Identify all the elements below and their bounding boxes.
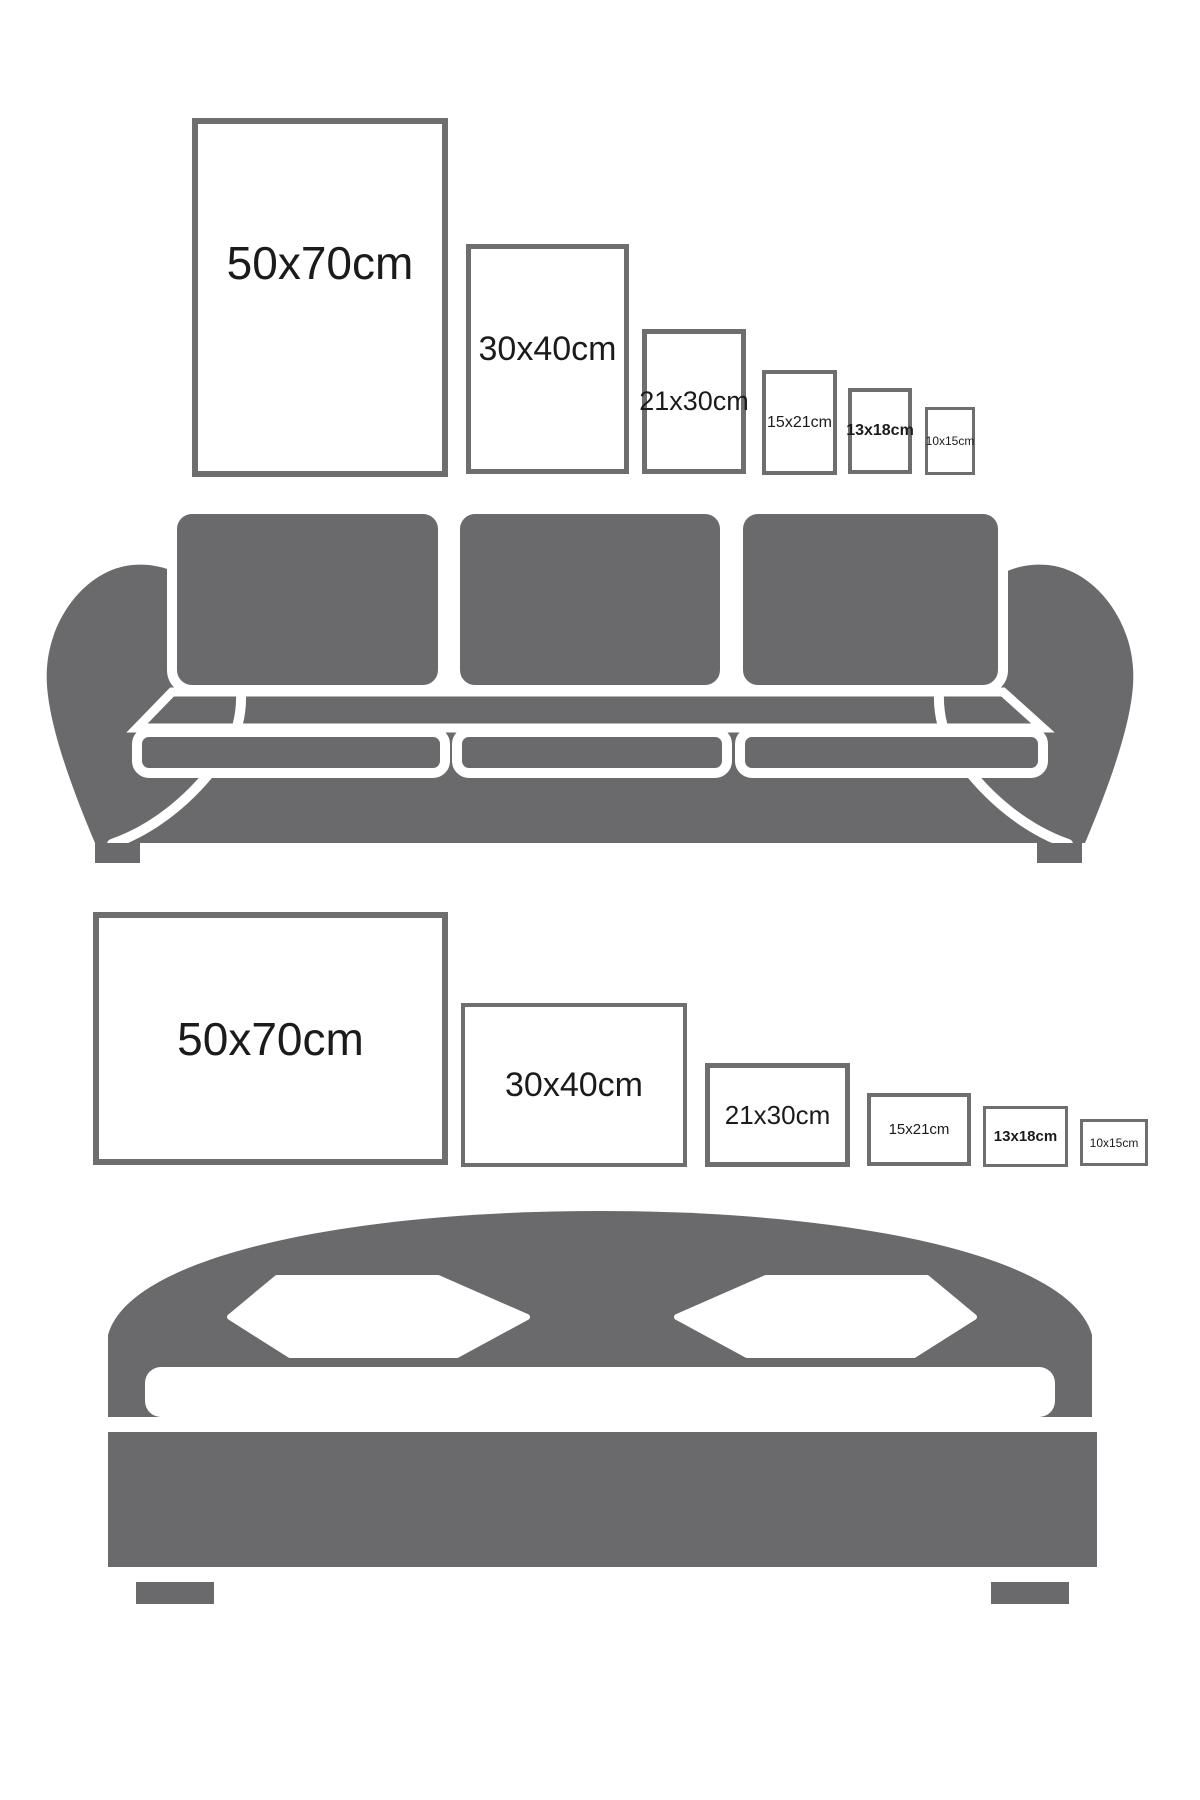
sofa-seat-cushion-middle xyxy=(457,732,727,773)
frame-label: 30x40cm xyxy=(505,1068,643,1102)
frame-13x18-landscape: 13x18cm xyxy=(983,1106,1068,1167)
frame-50x70-portrait: 50x70cm xyxy=(192,118,448,477)
sofa-back-cushion-right xyxy=(738,509,1003,690)
sofa-back-cushion-middle xyxy=(455,509,725,690)
frame-label: 21x30cm xyxy=(725,1102,831,1128)
frame-15x21-portrait: 15x21cm xyxy=(762,370,837,475)
frame-label: 10x15cm xyxy=(1090,1137,1139,1149)
frame-label: 13x18cm xyxy=(846,423,914,439)
frame-label: 50x70cm xyxy=(177,1016,364,1062)
poster-size-guide-infographic: 50x70cm 30x40cm 21x30cm 15x21cm 13x18cm … xyxy=(0,0,1200,1800)
frame-30x40-portrait: 30x40cm xyxy=(466,244,629,474)
frame-10x15-portrait: 10x15cm xyxy=(925,407,975,475)
frame-label: 13x18cm xyxy=(994,1129,1057,1144)
frame-label: 15x21cm xyxy=(889,1122,950,1137)
frame-label: 21x30cm xyxy=(639,388,749,415)
sofa-back-cushion-left xyxy=(172,509,443,690)
frame-label: 30x40cm xyxy=(479,332,617,366)
bed-illustration xyxy=(100,1195,1100,1665)
sofa-seat-cushion-left xyxy=(137,732,445,773)
frame-13x18-portrait: 13x18cm xyxy=(848,388,912,474)
frame-50x70-landscape: 50x70cm xyxy=(93,912,448,1165)
bed-mattress-strip xyxy=(145,1367,1055,1417)
sofa-seat-deck xyxy=(137,692,1043,728)
bed-left-leg xyxy=(136,1582,214,1604)
sofa-seat-cushion-right xyxy=(740,732,1043,773)
frame-21x30-landscape: 21x30cm xyxy=(705,1063,850,1167)
frame-10x15-landscape: 10x15cm xyxy=(1080,1119,1148,1166)
bed-right-leg xyxy=(991,1582,1069,1604)
frame-label: 10x15cm xyxy=(926,435,975,447)
frame-15x21-landscape: 15x21cm xyxy=(867,1093,971,1166)
sofa-illustration xyxy=(40,500,1140,870)
frame-label: 15x21cm xyxy=(767,415,832,431)
sofa-left-leg xyxy=(95,843,140,863)
frame-label: 50x70cm xyxy=(227,240,414,286)
sofa-right-leg xyxy=(1037,843,1082,863)
frame-21x30-portrait: 21x30cm xyxy=(642,329,746,474)
frame-30x40-landscape: 30x40cm xyxy=(461,1003,687,1167)
bed-base xyxy=(108,1432,1097,1567)
